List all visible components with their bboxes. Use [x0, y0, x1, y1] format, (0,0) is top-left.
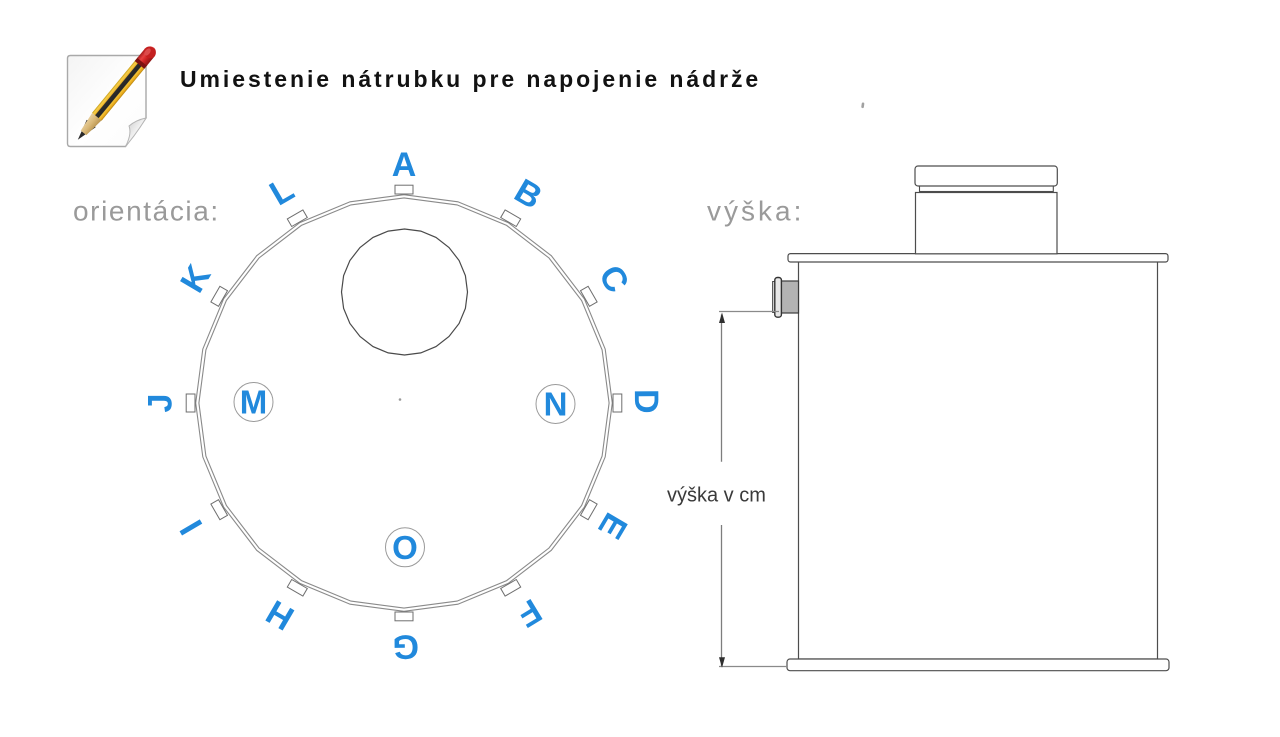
- svg-text:J: J: [141, 394, 179, 413]
- svg-text:F: F: [510, 591, 547, 634]
- svg-text:G: G: [392, 627, 419, 665]
- svg-text:N: N: [544, 386, 568, 423]
- svg-text:C: C: [591, 259, 636, 299]
- svg-text:orientácia:: orientácia:: [73, 196, 220, 227]
- svg-text:výška:: výška:: [707, 196, 804, 227]
- svg-text:L: L: [263, 170, 300, 213]
- svg-text:E: E: [590, 506, 634, 545]
- svg-text:B: B: [508, 172, 548, 217]
- svg-text:H: H: [260, 592, 300, 637]
- svg-text:výška v cm: výška v cm: [667, 485, 766, 507]
- svg-text:O: O: [392, 529, 418, 566]
- svg-text:A: A: [392, 146, 417, 184]
- svg-text:D: D: [627, 389, 665, 414]
- svg-text:M: M: [240, 384, 268, 421]
- svg-text:K: K: [173, 258, 218, 299]
- svg-text:Umiestenie nátrubku pre napoje: Umiestenie nátrubku pre napojenie nádrže: [180, 66, 761, 92]
- svg-text:I: I: [173, 513, 211, 540]
